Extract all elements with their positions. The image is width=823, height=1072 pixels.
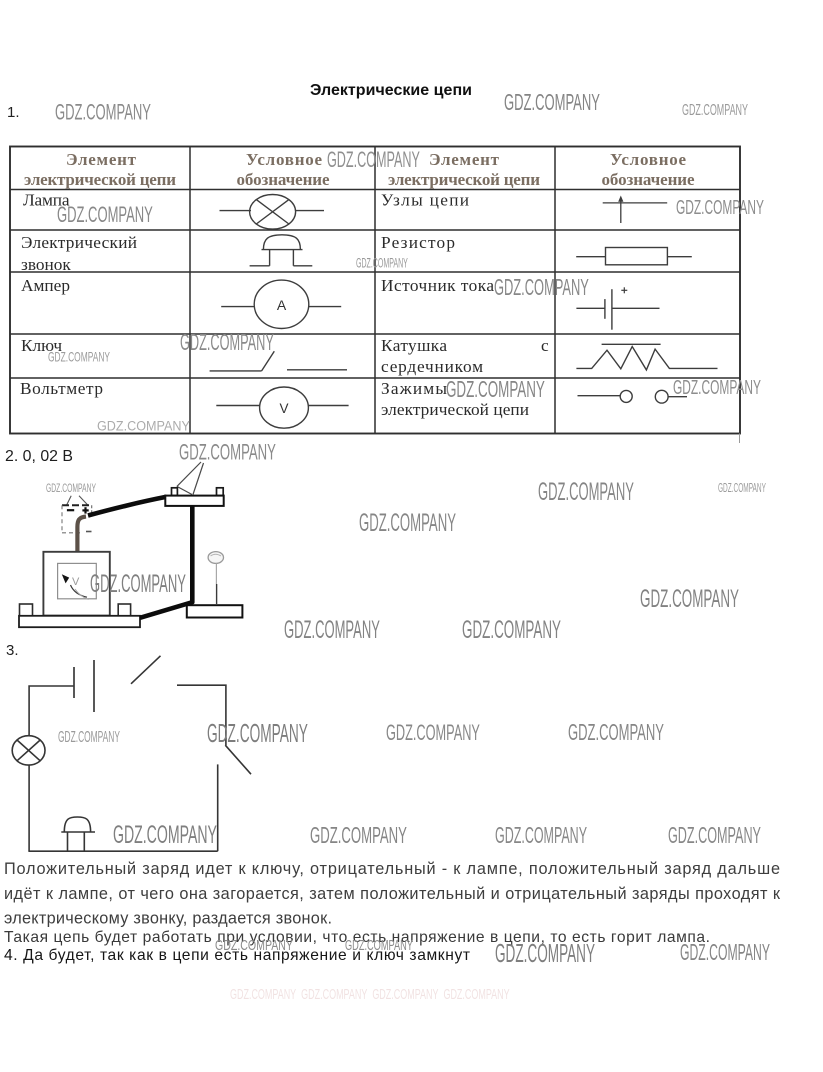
svg-text:GDZ.COMPANY: GDZ.COMPANY — [284, 617, 380, 645]
svg-text:обозначение: обозначение — [237, 170, 330, 189]
svg-text:GDZ.COMPANY: GDZ.COMPANY — [640, 586, 739, 613]
svg-text:GDZ.COMPANY: GDZ.COMPANY — [682, 100, 748, 119]
svg-text:Узлы цепи: Узлы цепи — [381, 191, 469, 210]
svg-text:Катушка: Катушка — [381, 336, 447, 355]
svg-text:GDZ.COMPANY: GDZ.COMPANY — [676, 196, 764, 219]
svg-text:GDZ.COMPANY: GDZ.COMPANY — [680, 939, 770, 965]
svg-text:GDZ.COMPANY: GDZ.COMPANY — [46, 482, 96, 495]
svg-text:1.: 1. — [7, 104, 20, 121]
svg-text:идёт к лампе, от чего она заго: идёт к лампе, от чего она загорается, за… — [4, 885, 781, 903]
svg-text:с: с — [541, 336, 549, 355]
svg-text:GDZ.COMPANY: GDZ.COMPANY — [495, 939, 595, 968]
svg-text:звонок: звонок — [21, 255, 71, 274]
svg-text:A: A — [277, 297, 287, 313]
svg-text:GDZ.COMPANY: GDZ.COMPANY — [345, 937, 413, 954]
svg-text:GDZ.COMPANY: GDZ.COMPANY — [462, 617, 561, 644]
svg-text:Условное: Условное — [246, 150, 322, 169]
svg-text:V: V — [279, 401, 288, 416]
svg-text:GDZ.COMPANY: GDZ.COMPANY — [359, 510, 456, 537]
svg-text:GDZ.COMPANY: GDZ.COMPANY — [495, 822, 587, 848]
svg-text:GDZ.COMPANY: GDZ.COMPANY — [48, 351, 110, 365]
svg-text:GDZ.COMPANY: GDZ.COMPANY — [668, 822, 761, 848]
svg-text:GDZ.COMPANY: GDZ.COMPANY — [386, 720, 480, 744]
svg-text:GDZ.COMPANY GDZ.COMPANY GDZ.: GDZ.COMPANY GDZ.COMPANY GDZ.COMPANY GDZ.… — [230, 986, 510, 1003]
svg-text:электрической цепи: электрической цепи — [388, 170, 540, 189]
svg-text:GDZ.COMPANY: GDZ.COMPANY — [538, 479, 634, 507]
svg-text:Резистор: Резистор — [381, 233, 455, 252]
svg-text:GDZ.COMPANY: GDZ.COMPANY — [55, 99, 151, 125]
svg-text:GDZ.COMPANY: GDZ.COMPANY — [504, 89, 600, 115]
svg-text:электрическому звонку, раздает: электрическому звонку, раздается звонок. — [4, 910, 332, 928]
svg-text:Условное: Условное — [610, 150, 686, 169]
svg-text:Ампер: Ампер — [21, 276, 70, 295]
svg-text:GDZ.COMPANY: GDZ.COMPANY — [113, 822, 217, 849]
svg-text:2. 0, 02 В: 2. 0, 02 В — [5, 448, 73, 465]
svg-text:GDZ.COMPANY: GDZ.COMPANY — [57, 203, 153, 227]
svg-text:GDZ.COMPANY: GDZ.COMPANY — [215, 937, 293, 953]
svg-text:Положительный заряд идет к клю: Положительный заряд идет к ключу, отрица… — [4, 860, 780, 878]
svg-text:Источник тока: Источник тока — [381, 276, 494, 295]
svg-text:GDZ.COMPANY: GDZ.COMPANY — [180, 329, 274, 355]
svg-text:V: V — [72, 576, 80, 588]
svg-text:электрической цепи: электрической цепи — [24, 170, 176, 189]
svg-text:Элемент: Элемент — [66, 150, 137, 169]
svg-text:GDZ.COMPANY: GDZ.COMPANY — [97, 418, 190, 434]
svg-text:GDZ.COMPANY: GDZ.COMPANY — [356, 256, 408, 271]
svg-text:GDZ.COMPANY: GDZ.COMPANY — [90, 571, 186, 599]
svg-text:GDZ.COMPANY: GDZ.COMPANY — [568, 719, 664, 745]
svg-text:Вольтметр: Вольтметр — [20, 379, 103, 398]
svg-text:GDZ.COMPANY: GDZ.COMPANY — [673, 376, 761, 399]
svg-text:Зажимы: Зажимы — [381, 379, 447, 398]
svg-text:GDZ.COMPANY: GDZ.COMPANY — [207, 719, 308, 748]
svg-text:Электрический: Электрический — [21, 233, 137, 252]
svg-text:GDZ.COMPANY: GDZ.COMPANY — [494, 274, 589, 300]
svg-text:GDZ.COMPANY: GDZ.COMPANY — [718, 482, 766, 496]
svg-text:обозначение: обозначение — [602, 170, 695, 189]
svg-text:Электрические цепи: Электрические цепи — [310, 82, 472, 99]
svg-text:3.: 3. — [6, 642, 19, 659]
svg-text:GDZ.COMPANY: GDZ.COMPANY — [310, 823, 407, 849]
svg-text:сердечником: сердечником — [381, 357, 483, 376]
svg-text:Элемент: Элемент — [429, 150, 500, 169]
svg-text:GDZ.COMPANY: GDZ.COMPANY — [327, 147, 420, 171]
svg-text:GDZ.COMPANY: GDZ.COMPANY — [446, 377, 545, 403]
svg-text:GDZ.COMPANY: GDZ.COMPANY — [58, 727, 120, 746]
svg-text:GDZ.COMPANY: GDZ.COMPANY — [179, 439, 276, 465]
